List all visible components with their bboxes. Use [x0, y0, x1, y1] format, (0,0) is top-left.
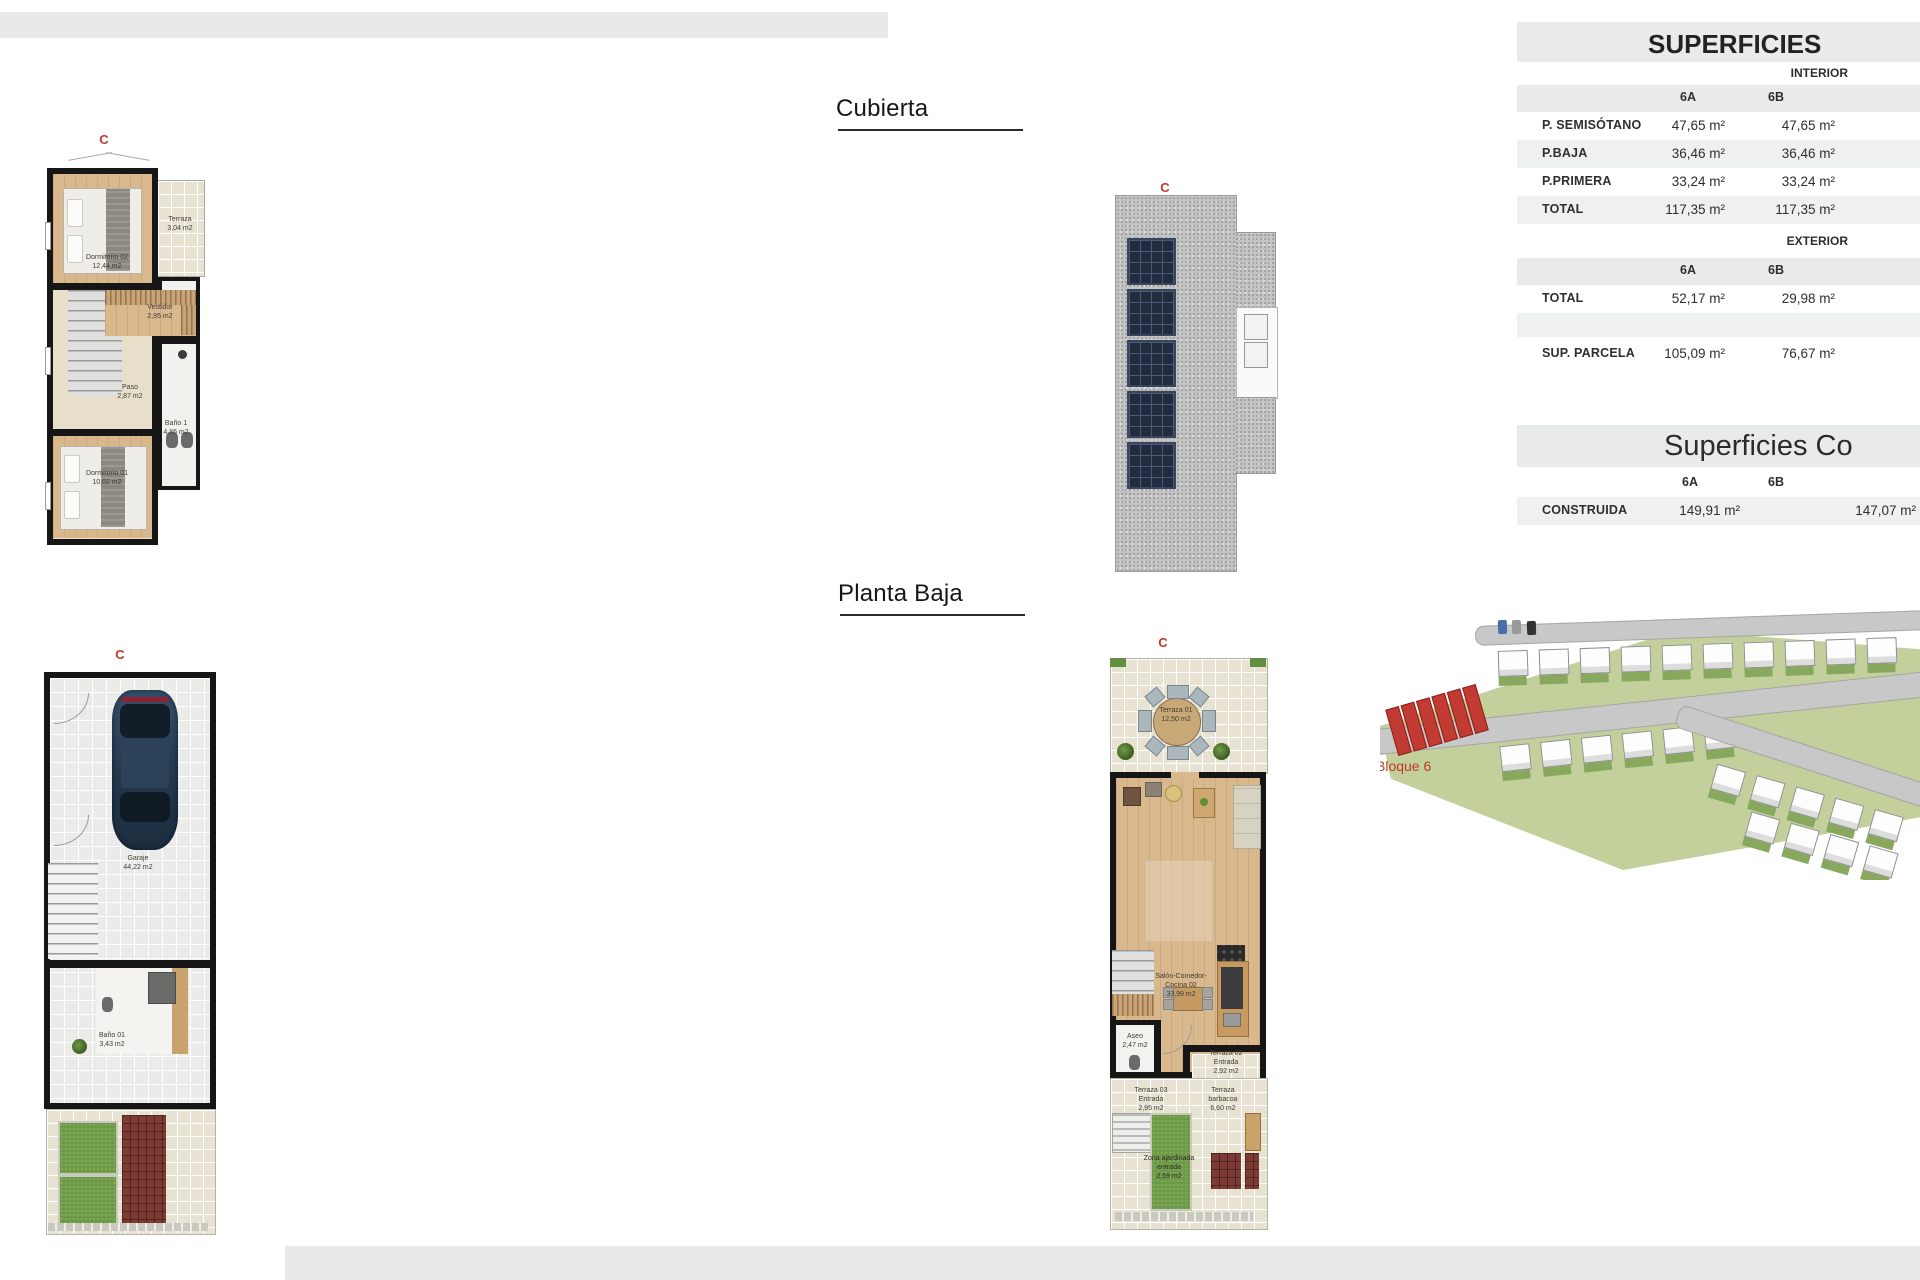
interior-column-header: 6A 6B: [1517, 85, 1920, 112]
room-label-zona-ajardinada: Zona ajardinada entrada 2,59 m2: [1125, 1155, 1213, 1181]
window: [45, 222, 51, 250]
toilet: [102, 997, 113, 1012]
plan-semisotano: C Garaje 44,22 m2 Baño 01 3,43 m2: [40, 645, 220, 1237]
row-label: TOTAL: [1542, 291, 1584, 305]
row-label: P.PRIMERA: [1542, 174, 1612, 188]
row-value-6b: 36,46 m²: [1782, 146, 1835, 161]
col-6b: 6B: [1751, 475, 1801, 489]
car-taillights: [121, 697, 169, 702]
rug: [1145, 860, 1213, 942]
table-row: SUP. PARCELA 105,09 m² 76,67 m²: [1517, 340, 1920, 368]
grass-patch: [58, 1121, 118, 1175]
col-6a: 6A: [1663, 263, 1713, 277]
plant: [72, 1039, 87, 1054]
solar-panel: [1127, 238, 1176, 285]
solar-panel: [1127, 391, 1176, 438]
toilet: [1129, 1055, 1140, 1070]
shower: [148, 972, 176, 1004]
exterior-column-header: 6A 6B: [1517, 258, 1920, 285]
plan-planta-baja: C Terraza 01 12,50 m2: [1105, 635, 1280, 1235]
coffee-table: [1193, 788, 1215, 818]
row-value-6b: 117,35 m²: [1775, 202, 1835, 217]
plan-cubierta: C: [1105, 180, 1280, 575]
door-opening: [1171, 772, 1199, 779]
tile-border: [1115, 1212, 1253, 1221]
section-c-marker: C: [84, 132, 124, 147]
side-table: [1165, 785, 1182, 802]
room-label-terraza-01: Terraza 01 12,50 m2: [1137, 707, 1215, 725]
car-roof: [121, 742, 169, 788]
bottom-divider-bar: [285, 1246, 1920, 1280]
plan-walls: [53, 283, 152, 290]
row-label: SUP. PARCELA: [1542, 346, 1635, 360]
row-value-6b: 76,67 m²: [1782, 346, 1835, 361]
col-6b: 6B: [1751, 90, 1801, 104]
row-value-6a: 33,24 m²: [1672, 174, 1725, 189]
bbq: [1211, 1153, 1241, 1189]
room-label-terraza-03: Terraza 03 Entrada 2,95 m2: [1113, 1087, 1189, 1113]
row-value-6a: 47,65 m²: [1672, 118, 1725, 133]
armchair: [1123, 787, 1141, 806]
top-divider-bar: [0, 12, 888, 38]
table-row: TOTAL 117,35 m² 117,35 m²: [1517, 196, 1920, 224]
row-label: CONSTRUIDA: [1542, 503, 1627, 517]
deck-tiles: [122, 1115, 166, 1225]
room-label-terraza-02: Terraza 02 Entrada 2,92 m2: [1192, 1050, 1260, 1076]
superficies-title: SUPERFICIES: [1648, 29, 1821, 60]
row-value-6a: 36,46 m²: [1672, 146, 1725, 161]
solar-panel: [1127, 289, 1176, 336]
roof-terrace-notch: [1236, 307, 1278, 399]
plan-walls: [158, 336, 200, 344]
plan-walls: [53, 429, 152, 436]
section-c-marker: C: [1143, 180, 1187, 195]
row-label: TOTAL: [1542, 202, 1584, 216]
plan-walls: [1183, 1045, 1190, 1078]
room-label-vestidor: Vestidor 2,95 m2: [130, 304, 190, 322]
title-planta-baja: Planta Baja: [838, 580, 963, 608]
superficies-table: SUPERFICIES INTERIOR 6A 6B P. SEMISÓTANO…: [1517, 22, 1920, 402]
table-row: P. SEMISÓTANO 47,65 m² 47,65 m²: [1517, 112, 1920, 140]
plan-planta-primera: C Terraza 3,04 m2 Dormitorio 02 12,44 m2…: [40, 132, 215, 552]
bloque-6-label: Bloque 6: [1380, 758, 1456, 774]
construidas-title: Superficies Co: [1664, 430, 1853, 463]
room-label-terraza: Terraza 3,04 m2: [157, 216, 203, 234]
row-value-6a: 52,17 m²: [1672, 291, 1725, 306]
room-label-paso: Paso 2,87 m2: [100, 384, 160, 402]
tile-border: [48, 1223, 208, 1231]
section-c-marker: C: [1145, 635, 1181, 650]
entrance-steps: [1112, 1113, 1152, 1153]
spacer-band: [1517, 313, 1920, 337]
col-6b: 6B: [1751, 263, 1801, 277]
row-value-6b: 33,24 m²: [1782, 174, 1835, 189]
roof-box: [1244, 314, 1268, 340]
armchair: [1145, 782, 1162, 797]
sofa: [1233, 785, 1261, 849]
title-planta-baja-underline: [840, 614, 1025, 616]
exterior-section-label: EXTERIOR: [1787, 234, 1848, 248]
kitchen-sink: [1223, 1013, 1241, 1027]
solar-panel: [1127, 340, 1176, 387]
room-label-bano-1: Baño 1 4,86 m2: [146, 420, 206, 438]
car-rear-window: [120, 704, 170, 738]
car: [1512, 620, 1521, 634]
roof-surface: [1235, 232, 1276, 309]
row-value-6b: 29,98 m²: [1782, 291, 1835, 306]
bathroom-sink: [178, 350, 187, 359]
row-value-6a: 105,09 m²: [1664, 346, 1725, 361]
col-6a: 6A: [1665, 475, 1715, 489]
title-cubierta-underline: [838, 129, 1023, 131]
cooktop: [1217, 945, 1245, 961]
plant: [1117, 743, 1134, 760]
room-label-dormitorio-02: Dormitorio 02 12,44 m2: [57, 254, 157, 272]
window: [45, 482, 51, 510]
row-value-6b: 147,07 m²: [1855, 503, 1916, 518]
room-label-garaje: Garaje 44,22 m2: [98, 855, 178, 873]
table-row: P.BAJA 36,46 m² 36,46 m²: [1517, 140, 1920, 168]
superficies-title-band: SUPERFICIES: [1517, 22, 1920, 62]
solar-panel: [1127, 442, 1176, 489]
room-label-dormitorio-01: Dormitorio 01 10,02 m2: [57, 470, 157, 488]
construidas-table: Superficies Co 6A 6B CONSTRUIDA 149,91 m…: [1517, 425, 1920, 525]
site-plan: Bloque 6: [1380, 600, 1920, 880]
section-c-marker: C: [98, 647, 142, 662]
construidas-column-header: 6A 6B: [1517, 471, 1920, 497]
table-row: P.PRIMERA 33,24 m² 33,24 m²: [1517, 168, 1920, 196]
table-row: TOTAL 52,17 m² 29,98 m²: [1517, 285, 1920, 313]
plan-walls: [44, 960, 216, 968]
brochure-page: Cubierta Planta Baja SUPERFICIES INTERIO…: [0, 0, 1920, 1280]
col-6a: 6A: [1663, 90, 1713, 104]
roof-gable-line: [106, 152, 150, 161]
construidas-title-band: Superficies Co: [1517, 425, 1920, 467]
plant: [1213, 743, 1230, 760]
car: [112, 690, 178, 850]
row-value-6b: 47,65 m²: [1782, 118, 1835, 133]
room-label-bano-01: Baño 01 3,43 m2: [82, 1032, 142, 1050]
row-label: P. SEMISÓTANO: [1542, 118, 1641, 132]
room-label-barbacoa: Terraza barbacoa 6,60 m2: [1191, 1087, 1255, 1113]
row-value-6a: 117,35 m²: [1665, 202, 1725, 217]
roof-surface: [1235, 397, 1276, 474]
table-row: CONSTRUIDA 149,91 m² 147,07 m²: [1517, 497, 1920, 525]
wardrobe: [105, 290, 196, 305]
interior-section-label: INTERIOR: [1791, 66, 1848, 80]
row-label: P.BAJA: [1542, 146, 1587, 160]
car: [1498, 620, 1507, 634]
car-windshield: [120, 792, 170, 822]
planter: [1250, 658, 1266, 667]
roof-box: [1244, 342, 1268, 368]
room-label-aseo: Aseo 2,47 m2: [1111, 1033, 1159, 1051]
planter: [1110, 658, 1126, 667]
stairs: [48, 863, 98, 959]
room-label-salon: Salón-Comedor- Cocina 02 33,99 m2: [1133, 973, 1229, 999]
window: [45, 347, 51, 375]
title-cubierta: Cubierta: [836, 95, 928, 123]
outdoor-counter: [1245, 1113, 1261, 1151]
car: [1527, 621, 1536, 635]
grass-patch: [58, 1175, 118, 1227]
roof-gable-line: [68, 152, 112, 161]
row-value-6a: 149,91 m²: [1679, 503, 1740, 518]
bbq-counter: [1245, 1153, 1259, 1189]
bed: [60, 446, 147, 530]
